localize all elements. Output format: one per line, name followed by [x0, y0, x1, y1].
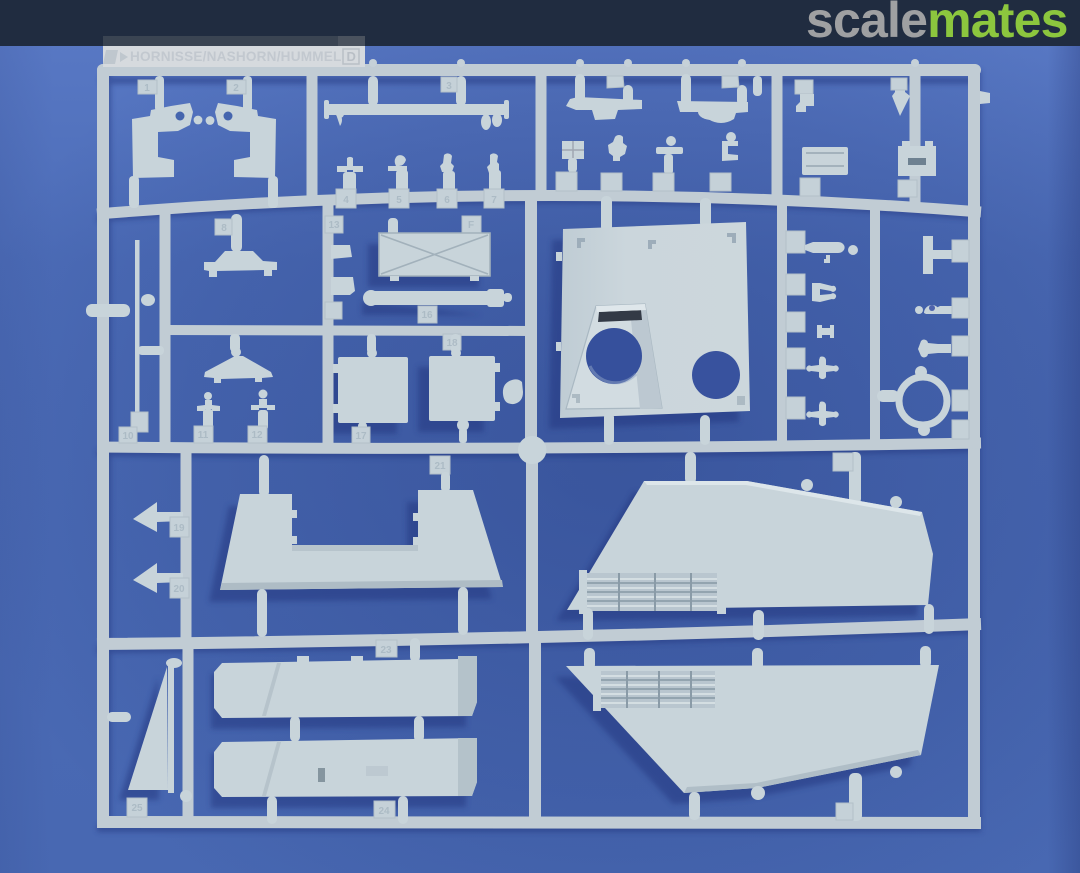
svg-text:3: 3 — [446, 81, 452, 92]
svg-text:5: 5 — [396, 195, 402, 206]
svg-text:16: 16 — [421, 310, 433, 321]
svg-text:6: 6 — [444, 195, 450, 206]
svg-text:F: F — [468, 220, 474, 231]
svg-text:2: 2 — [233, 83, 239, 94]
svg-text:1: 1 — [144, 83, 150, 94]
svg-text:D: D — [347, 49, 356, 64]
svg-text:scalemates: scalemates — [806, 0, 1068, 48]
svg-text:25: 25 — [131, 803, 143, 814]
svg-text:7: 7 — [491, 195, 497, 206]
svg-text:HORNISSE/NASHORN/HUMMEL: HORNISSE/NASHORN/HUMMEL — [130, 49, 342, 64]
svg-text:19: 19 — [173, 523, 185, 534]
svg-text:20: 20 — [173, 584, 185, 595]
svg-text:4: 4 — [343, 195, 349, 206]
svg-text:18: 18 — [446, 338, 458, 349]
svg-text:11: 11 — [198, 430, 209, 441]
svg-text:24: 24 — [378, 806, 390, 817]
svg-text:8: 8 — [221, 223, 227, 234]
svg-text:21: 21 — [434, 461, 446, 472]
svg-text:10: 10 — [122, 431, 134, 442]
svg-text:17: 17 — [355, 431, 367, 442]
svg-text:23: 23 — [380, 645, 392, 656]
svg-text:13: 13 — [328, 220, 340, 231]
svg-text:12: 12 — [251, 430, 263, 441]
